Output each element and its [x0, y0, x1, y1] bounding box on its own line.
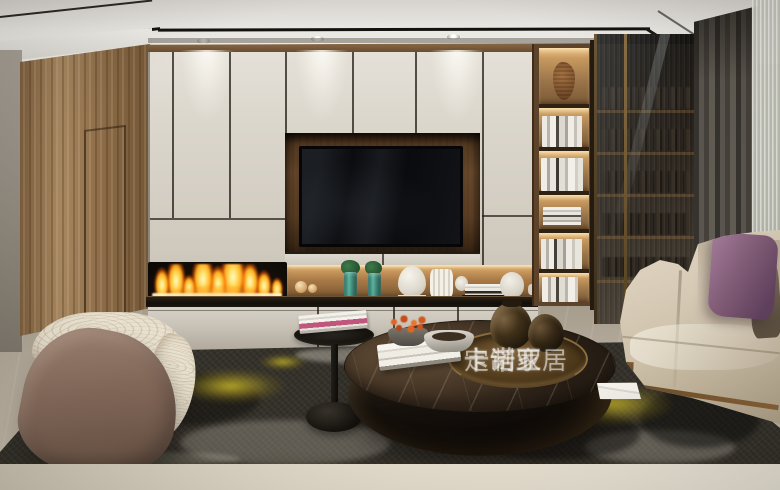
- green-glass-vase: [344, 272, 357, 298]
- shelf-compartment: [539, 108, 589, 147]
- shelf-compartment: [539, 151, 589, 191]
- gold-ornament: [295, 281, 307, 293]
- glass-frame: [594, 34, 597, 324]
- ceiling-trim-line: [0, 0, 152, 18]
- curved-armchair: [20, 296, 198, 476]
- linear-fireplace: [148, 262, 287, 299]
- cabinet-reveal-line: [482, 52, 484, 268]
- cabinet-reveal-line: [172, 52, 174, 218]
- ribbed-vase: [430, 269, 453, 298]
- orange-flowers: [386, 314, 430, 334]
- jar-lip: [502, 299, 522, 307]
- books: [541, 239, 586, 269]
- books: [543, 207, 581, 229]
- purple-pillow: [707, 232, 779, 320]
- open-bookshelf: [532, 44, 592, 306]
- bowl-contents: [432, 332, 466, 341]
- hidden-door-seam: [124, 126, 126, 324]
- white-vase: [500, 272, 524, 298]
- green-glass-vase: [368, 273, 381, 298]
- cabinet-reveal-line: [482, 215, 534, 217]
- living-room-render: 卡诺亚 定制家居: [0, 0, 780, 490]
- side-table-stem: [331, 344, 338, 406]
- cabinet-reveal-line: [229, 52, 231, 218]
- white-sculpture: [398, 266, 426, 297]
- ceiling-trim-line: [158, 27, 650, 31]
- tv-screen: [302, 149, 460, 244]
- watermark-suffix-text: 定制家居: [464, 341, 568, 377]
- display-shelf: [287, 265, 537, 298]
- foreground-table-edge: [0, 464, 780, 490]
- wicker-ornament: [553, 62, 575, 100]
- books: [541, 158, 585, 191]
- shelf-compartment: [539, 48, 589, 104]
- cabinet-reveal-line: [415, 52, 417, 135]
- shelf-compartment: [539, 195, 589, 229]
- left-wall: [0, 50, 22, 352]
- gold-ornament: [308, 284, 317, 293]
- hidden-door-seam: [84, 125, 126, 132]
- cabinet-reveal-line: [150, 218, 285, 220]
- round-coffee-table: [340, 298, 620, 464]
- wood-panel-wall: [18, 40, 150, 340]
- cabinet-reveal-line: [352, 52, 354, 135]
- television: [299, 146, 463, 247]
- shelf-compartment: [539, 233, 589, 269]
- glass-frame: [624, 34, 627, 324]
- books: [542, 116, 584, 147]
- bookshelf-interior: [539, 48, 589, 302]
